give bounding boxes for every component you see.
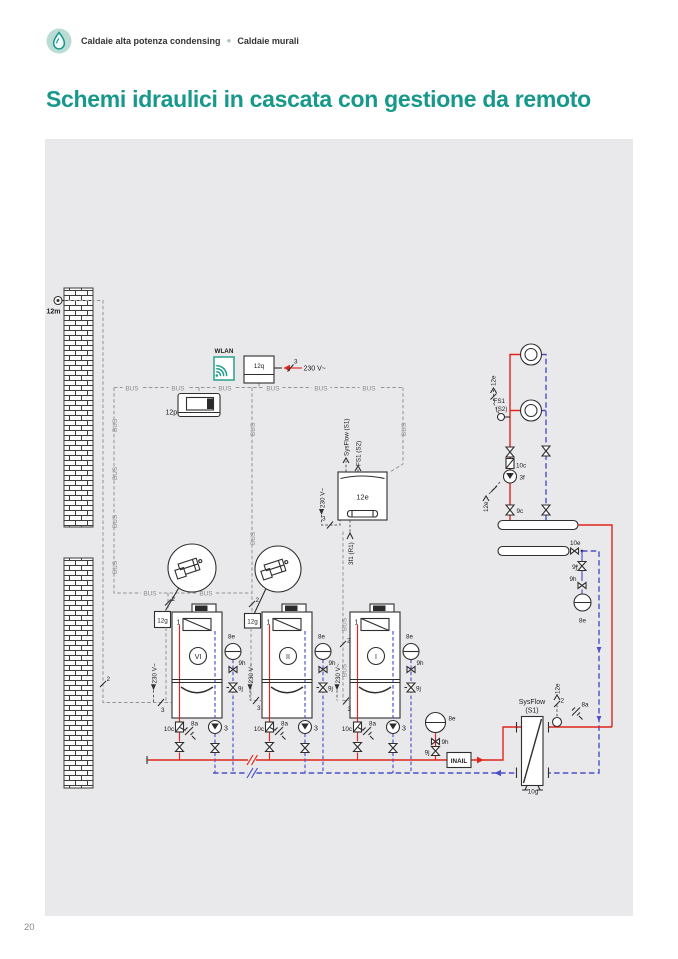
cable-sysflow-s1: SysFlow (S1) [344,419,351,456]
wire-count-3: 3 [161,707,165,714]
valve [176,743,184,752]
wire-count-2: 2 [561,698,565,705]
label-10e: 10e [570,540,581,547]
safety-valve-8a: 8a [572,702,589,720]
wire-count-3: 3 [294,359,298,366]
valve [266,743,274,752]
bus-label: BUS [266,385,279,392]
cable-fs1-s2: FS1 (S2) [356,441,363,466]
cascade-manager-12e: SysFlow (S1) FS1 (S2) 12e 230 V~ 3 3f1 (… [319,419,387,565]
label-9c: 9c [517,508,524,515]
label-sysflow: SysFlow [519,699,546,706]
boiler-unit-i: I 1 8e 9h 9j 10c 8a 3 [342,604,424,773]
diagram-panel: 12m 2 BUS BUS BUS BUS BUS B [45,139,633,916]
label-9j: 9j [238,686,243,693]
bus-label: BUS [199,591,212,598]
label-10c: 10c [164,726,174,733]
valve-9c [506,505,514,515]
valve-9j [432,747,440,756]
label-1: 1 [177,620,181,627]
inail-box: INAIL [447,753,471,768]
mains-label: 230 V~ [152,663,159,683]
wire-count-3: 3 [257,705,261,712]
safety-valve-8a [180,727,196,740]
wlan-label: WLAN [215,348,234,355]
page-title: Schemi idraulici in cascata con gestione… [46,86,591,113]
wire-count-3: 3 [348,706,352,713]
label-12e: 12e [356,493,369,502]
label-9h: 9h [417,660,425,667]
bus-label: BUS [112,515,119,528]
boiler-unit-ii: II 1 8e 9h 9j 10c 8a 3 [254,604,336,773]
mains-label: 230 V~ [304,366,326,373]
bus-label: BUS [112,419,119,432]
valve [301,744,309,753]
bus-label: BUS [401,423,408,436]
label-1: 1 [355,620,359,627]
safety-valve-8a [270,727,286,740]
valve [506,447,514,457]
page-header: Caldaie alta potenza condensing●Caldaie … [46,28,299,54]
label-10c: 10c [254,726,264,733]
cable-to-12e: 12e [491,375,498,386]
boiler-number: VI [195,654,202,661]
valve-9j [578,562,586,571]
label-9j: 9j [416,686,421,693]
valve [542,505,550,515]
label-10c: 10c [342,726,352,733]
supply-return-trunks: INAIL 8e 9h 9j [147,713,522,779]
label-10g: 10g [528,789,539,796]
label-9j: 9j [425,750,430,757]
mains-label: 230 V~ [320,488,327,508]
bus-label: BUS [362,385,375,392]
label-s2: (S2) [496,406,508,413]
valve-10e [571,548,579,554]
label-9j: 9j [328,686,333,693]
label-12m: 12m [47,309,61,316]
breadcrumb-item-1: Caldaie alta potenza condensing [81,36,221,46]
label-8a: 8a [582,702,590,709]
label-8a: 8a [191,721,199,728]
breadcrumb-separator-dot: ● [227,36,232,45]
brick-wall [64,288,93,788]
label-3: 3 [224,726,228,733]
bus-label: BUS [250,423,257,436]
label-8a: 8a [281,721,289,728]
sensor-s1 [553,718,562,727]
gateway-12q: 12q 3 230 V~ [244,356,326,388]
label-1: 1 [267,620,271,627]
label-3: 3 [402,726,406,733]
label-12g: 12g [157,618,168,625]
label-10c: 10c [516,463,526,470]
label-fs1: FS1 [494,398,506,405]
bus-label: BUS [218,385,231,392]
label-8e: 8e [579,618,587,625]
bus-label: BUS [342,618,349,631]
label-9h: 9h [442,739,450,746]
valve-9j [319,683,327,692]
label-9h: 9h [569,576,577,583]
bus-label: BUS [143,591,156,598]
valve-9j [229,683,237,692]
valve [389,744,397,753]
label-3: 3 [314,726,318,733]
label-8e: 8e [228,634,236,641]
bus-label: BUS [250,532,257,545]
label-8e: 8e [406,634,414,641]
bus-label: BUS [342,664,349,677]
bus-label: BUS [314,385,327,392]
wire-count-2: 2 [107,676,111,683]
boiler-number: II [286,654,290,661]
wire-count-3: 3 [322,516,326,523]
label-3f: 3f [520,475,526,482]
breadcrumb: Caldaie alta potenza condensing●Caldaie … [81,36,299,46]
label-s1: (S1) [525,708,538,715]
mains-label: 230 V~ [335,663,342,683]
wire-count-2: 2 [347,638,351,645]
label-8e: 8e [318,634,326,641]
label-12p: 12p [166,410,178,417]
document-page: Caldaie alta potenza condensing●Caldaie … [0,0,678,959]
label-8a: 8a [369,721,377,728]
valve [542,446,550,456]
valve-9j [407,683,415,692]
boiler-number: I [375,654,377,661]
bus-label: BUS [112,467,119,480]
label-9j: 9j [572,564,577,571]
wlan-module: WLAN [214,348,234,380]
bus-label: BUS [112,561,119,574]
bus-label: BUS [171,385,184,392]
valve [354,743,362,752]
label-inail: INAIL [451,758,468,765]
bus-label: BUS [125,385,138,392]
breadcrumb-item-2: Caldaie murali [237,36,299,46]
valve [211,744,219,753]
label-12q: 12q [254,363,265,370]
hydraulic-schematic: 12m 2 BUS BUS BUS BUS BUS B [45,139,633,916]
mains-label: 230 V~ [248,663,255,683]
cable-relay-r1: 3f1 (R1) [348,542,355,565]
safety-valve-8a [358,727,374,740]
valve-9h [578,583,586,589]
boiler-unit-vi: VI 1 8e 9h 9j 10c 8a 3 [164,604,246,773]
hydraulic-separator-10g: SysFlow (S1) 10g 2 12e 8a [517,683,613,796]
cable-to-12e: 12e [555,683,562,694]
dhw-circuit: 12e FS1 (S2) 10c 3f 12e 9c 10e [483,344,612,773]
page-number: 20 [24,922,35,933]
label-8e: 8e [449,716,457,723]
label-12g: 12g [247,619,258,626]
flame-icon [46,28,72,54]
label-9h: 9h [239,660,247,667]
cable-to-12e: 12e [483,501,490,512]
